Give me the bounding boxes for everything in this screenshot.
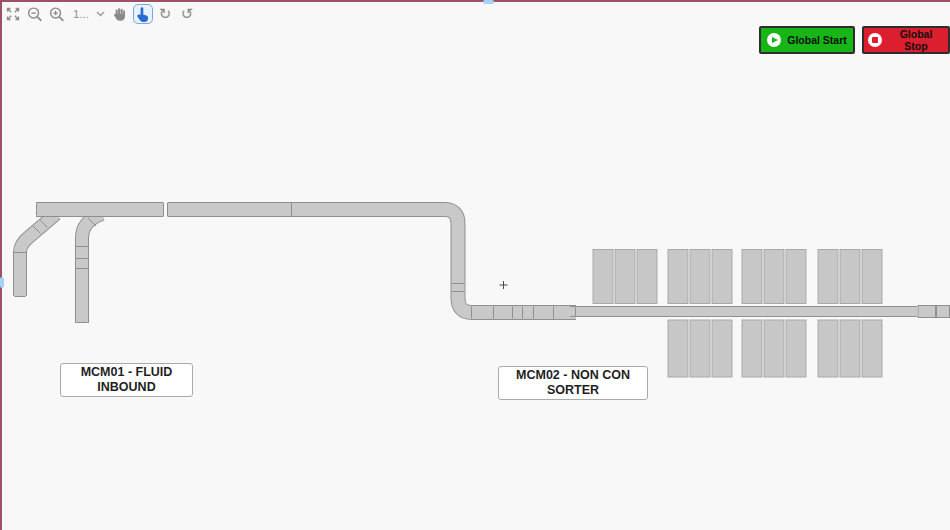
sorter-chute-top [615, 250, 635, 304]
play-icon [767, 33, 781, 47]
global-actions: Global Start Global Stop [759, 26, 950, 54]
mcm02-non-con-sorter-label[interactable]: MCM02 - NON CON SORTER [498, 366, 648, 400]
fit-to-screen-button[interactable] [3, 4, 23, 24]
zoom-out-icon [26, 5, 44, 24]
hand-icon [112, 6, 129, 23]
chevron-down-icon [96, 11, 105, 17]
window-border-top [0, 0, 950, 2]
vertical-scrollbar-thumb[interactable] [0, 277, 4, 288]
sorter-chute-bottom [862, 320, 882, 377]
touch-pointer-icon [134, 6, 151, 23]
mcm01-label-line2: INBOUND [61, 380, 192, 395]
sorter-chute-bottom [840, 320, 860, 377]
sorter-chute-top [742, 250, 762, 304]
mcm01-fluid-inbound-label[interactable]: MCM01 - FLUID INBOUND [60, 363, 193, 397]
belt-end-segment [937, 306, 950, 318]
belt-segment-gap [164, 202, 168, 218]
zoom-in-icon [48, 5, 66, 24]
reset-view-button[interactable]: ↺ [177, 4, 197, 24]
mcm01-main-belt [36, 210, 576, 313]
sorter-chute-bottom [690, 320, 710, 377]
global-stop-label: Global Stop [888, 28, 944, 52]
sorter-chute-bottom [818, 320, 838, 377]
global-start-label: Global Start [787, 34, 847, 46]
zoom-in-button[interactable] [47, 4, 67, 24]
sorter-chute-bottom [764, 320, 784, 377]
sorter-chute-bottom [742, 320, 762, 377]
horizontal-scrollbar-thumb[interactable] [483, 0, 494, 4]
sorter-chute-bottom [786, 320, 806, 377]
global-start-button[interactable]: Global Start [759, 26, 855, 54]
zoom-out-button[interactable] [25, 4, 45, 24]
conveyor-canvas[interactable] [0, 0, 950, 530]
mcm02-label-line2: SORTER [499, 383, 647, 398]
zoom-level-value: 1... [73, 8, 89, 20]
sorter-chute-top [690, 250, 710, 304]
mcm02-label-line1: MCM02 - NON CON [499, 368, 647, 383]
pan-tool-button[interactable] [111, 4, 131, 24]
select-tool-button[interactable] [133, 4, 153, 24]
sorter-chute-top [593, 250, 613, 304]
sorter-chute-top [818, 250, 838, 304]
zoom-level-select[interactable]: 1... [69, 8, 109, 20]
sorter-chute-top [786, 250, 806, 304]
mcm01-branch-left-belt [20, 214, 56, 296]
rotate-clockwise-icon: ↻ [159, 7, 172, 22]
mcm01-label-line1: MCM01 - FLUID [61, 365, 192, 380]
sorter-chute-top [764, 250, 784, 304]
sorter-chute-top [712, 250, 732, 304]
rotate-view-button[interactable]: ↻ [155, 4, 175, 24]
global-stop-button[interactable]: Global Stop [862, 26, 950, 54]
rotate-counterclockwise-icon: ↺ [181, 7, 194, 22]
canvas-toolbar: 1... ↻ ↺ [3, 4, 197, 24]
stop-icon [868, 33, 882, 47]
sorter-chute-bottom [712, 320, 732, 377]
sorter-chute-top [637, 250, 657, 304]
belt-end-segment [918, 306, 936, 318]
sorter-chute-bottom [668, 320, 688, 377]
sorter-chute-top [862, 250, 882, 304]
window-border-left [0, 0, 2, 530]
expand-arrows-icon [5, 6, 21, 22]
sorter-chute-top [840, 250, 860, 304]
sorter-chute-top [668, 250, 688, 304]
mcm01-main-belt-outline [36, 210, 576, 313]
